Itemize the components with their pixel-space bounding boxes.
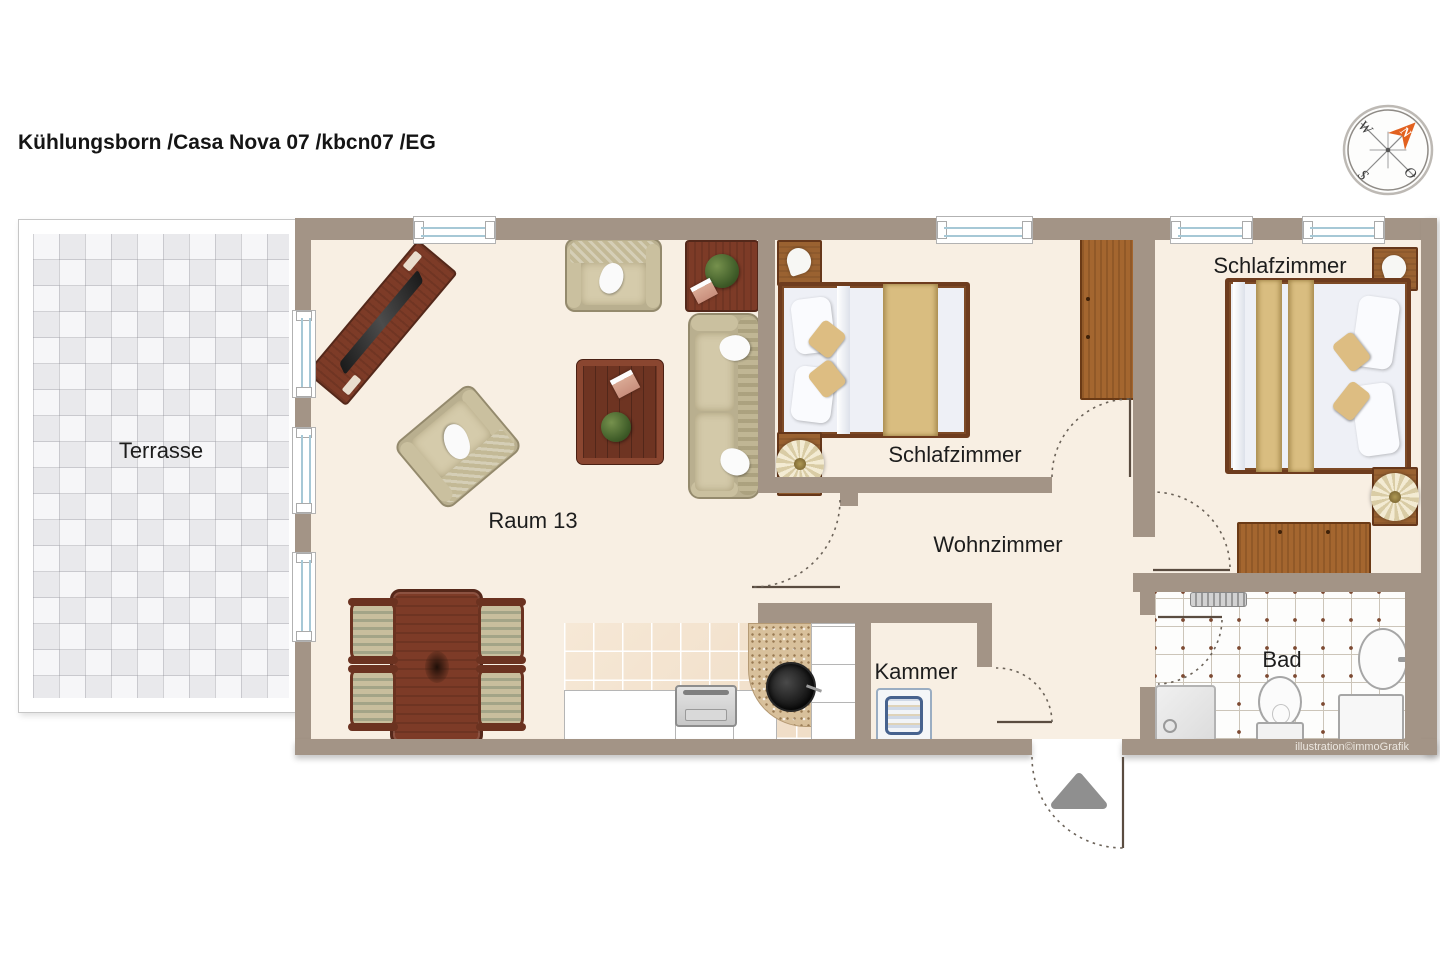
dining-chair xyxy=(478,600,524,662)
wall-segment xyxy=(1421,218,1437,755)
lamp-icon xyxy=(1371,473,1419,521)
terrace-window-door xyxy=(292,552,316,642)
armchair xyxy=(565,238,662,312)
room-label-wohnzimmer: Wohnzimmer xyxy=(933,532,1062,558)
kitchen-cabinet xyxy=(564,690,677,741)
wall-segment xyxy=(855,623,871,739)
plan-title: Kühlungsborn /Casa Nova 07 /kbcn07 /EG xyxy=(18,131,436,155)
dining-chair xyxy=(350,600,396,662)
wall-segment xyxy=(295,739,1032,755)
window xyxy=(413,216,496,244)
shower xyxy=(1155,685,1216,743)
dining-chair xyxy=(350,667,396,729)
kitchen-counter-column xyxy=(811,623,857,741)
deco-tray-icon xyxy=(610,370,641,399)
wall-segment xyxy=(1133,573,1437,592)
terrace-window-door xyxy=(292,310,316,398)
wall-segment xyxy=(1140,687,1155,739)
dining-table xyxy=(390,589,483,745)
apartment-plan: Raum 13 Schlafzimmer Wohnzimmer Schlafzi… xyxy=(295,218,1437,755)
dining-chair xyxy=(478,667,524,729)
window xyxy=(1170,216,1253,244)
room-label-terrasse: Terrasse xyxy=(19,438,303,464)
stove xyxy=(675,685,737,727)
towel-radiator xyxy=(1190,592,1247,607)
bathroom-cabinet xyxy=(1338,694,1404,743)
terrace-tiles xyxy=(33,234,289,698)
entrance-arrow-icon xyxy=(1055,777,1103,805)
toilet xyxy=(1258,676,1302,728)
room-label-schlafzimmer-2: Schlafzimmer xyxy=(1213,253,1346,279)
wall-segment xyxy=(1405,592,1421,739)
room-label-raum13: Raum 13 xyxy=(488,508,577,534)
wall-segment xyxy=(758,603,992,623)
wall-segment xyxy=(1133,240,1155,537)
coffee-table xyxy=(577,360,663,464)
kitchen-sink-icon xyxy=(766,662,816,712)
attribution-text: illustration©immoGrafik xyxy=(1295,741,1409,753)
window xyxy=(936,216,1033,244)
terrace-area: Terrasse xyxy=(18,219,304,713)
nightstand xyxy=(1372,467,1418,526)
window xyxy=(1302,216,1385,244)
double-bed xyxy=(1225,278,1411,474)
floorplan-page: Kühlungsborn /Casa Nova 07 /kbcn07 /EG N… xyxy=(0,0,1440,960)
room-label-bad: Bad xyxy=(1262,647,1301,673)
wall-segment xyxy=(977,623,992,667)
sofa xyxy=(688,313,760,499)
lamp-icon xyxy=(784,245,815,277)
terrace-window-door xyxy=(292,427,316,514)
double-bed xyxy=(778,282,970,438)
dresser xyxy=(1237,522,1371,576)
wardrobe xyxy=(1080,238,1141,400)
room-label-schlafzimmer-1: Schlafzimmer xyxy=(888,442,1021,468)
nightstand xyxy=(777,240,822,286)
washing-machine xyxy=(876,688,932,743)
plant-icon xyxy=(601,412,631,442)
wall-segment xyxy=(758,477,1052,493)
bathroom-sink xyxy=(1358,628,1408,690)
compass-rose-icon: N W O S xyxy=(1341,103,1435,197)
wall-segment xyxy=(1140,592,1155,615)
corner-shelf xyxy=(685,240,759,312)
wall-segment xyxy=(758,240,775,493)
wall-segment xyxy=(840,477,858,506)
room-label-kammer: Kammer xyxy=(874,659,957,685)
